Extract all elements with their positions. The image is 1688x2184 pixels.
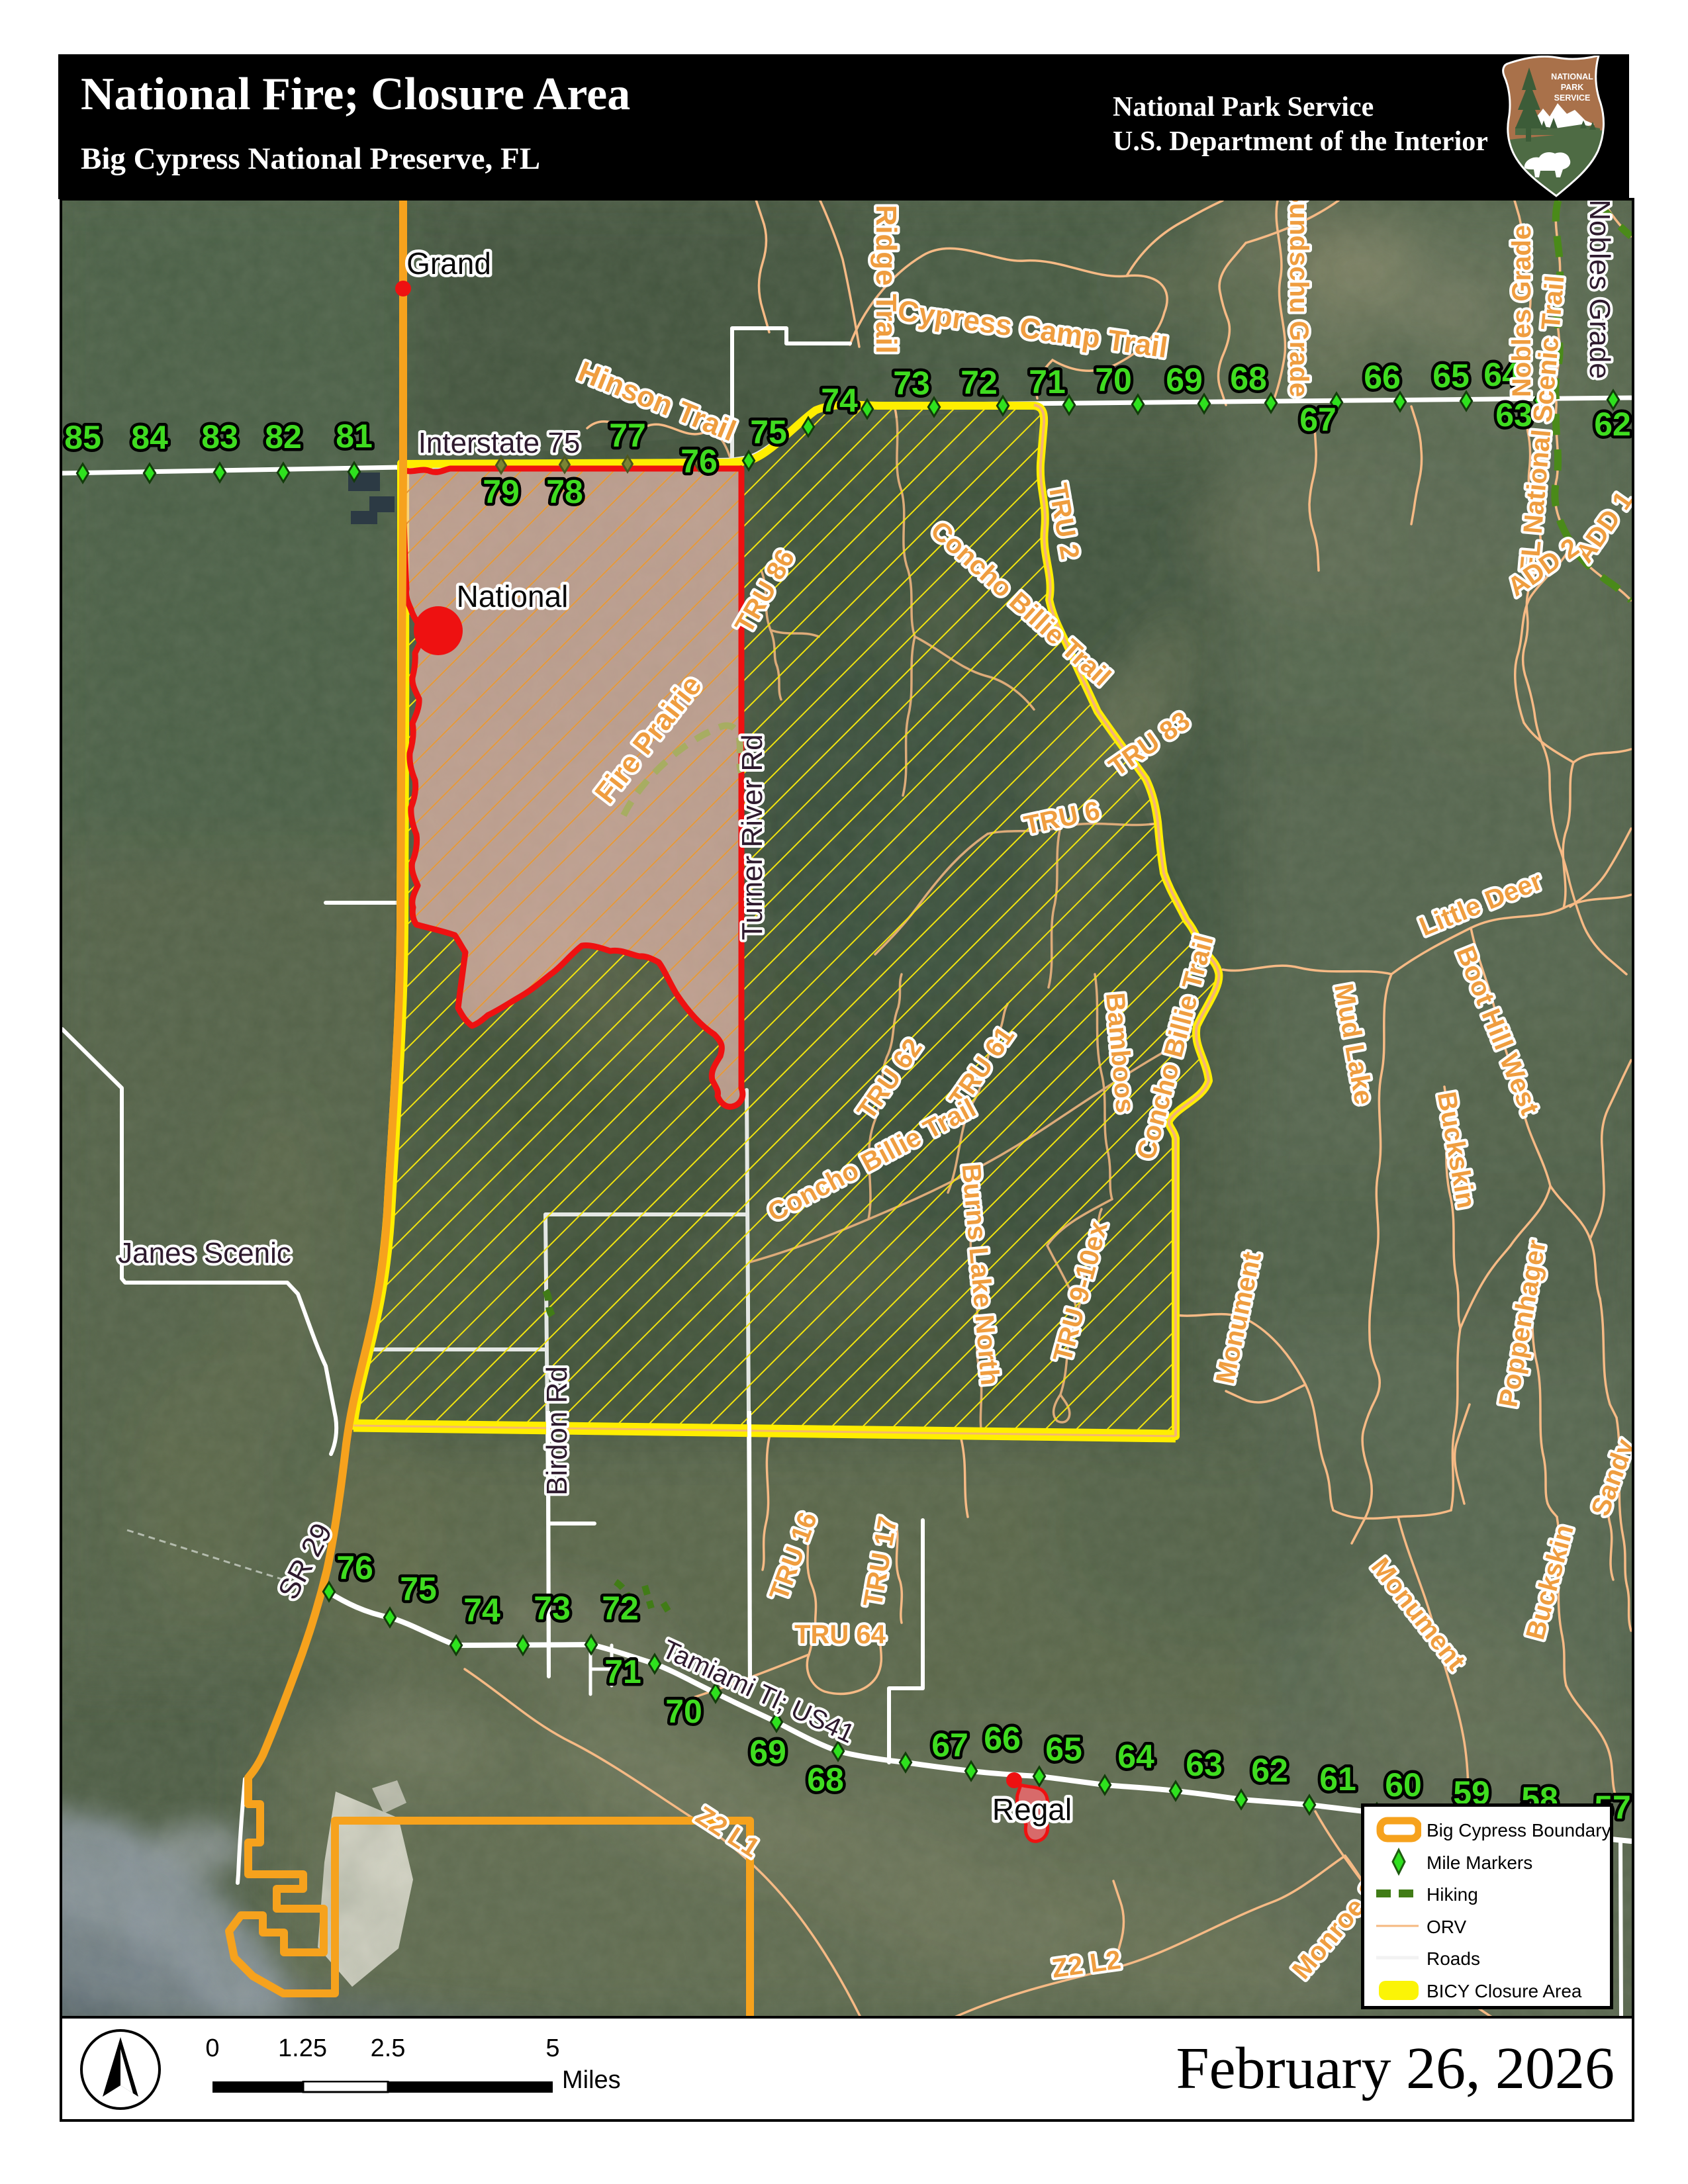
svg-text:Bundschu Grade: Bundschu Grade	[1284, 201, 1313, 397]
svg-text:72: 72	[602, 1590, 639, 1627]
svg-text:75: 75	[750, 414, 787, 451]
svg-text:67: 67	[931, 1727, 968, 1764]
svg-text:62: 62	[1251, 1752, 1288, 1789]
svg-text:70: 70	[665, 1693, 702, 1730]
svg-text:Regal: Regal	[992, 1792, 1072, 1827]
svg-text:73: 73	[534, 1590, 571, 1627]
svg-text:66: 66	[1364, 359, 1401, 396]
svg-text:77: 77	[609, 417, 646, 454]
svg-text:70: 70	[1095, 361, 1132, 398]
svg-text:64: 64	[1117, 1738, 1154, 1775]
svg-text:76: 76	[336, 1549, 373, 1586]
svg-text:69: 69	[1166, 361, 1203, 398]
svg-text:85: 85	[64, 419, 101, 456]
svg-text:82: 82	[265, 418, 302, 455]
svg-text:65: 65	[1432, 357, 1470, 394]
svg-text:Turner River Rd: Turner River Rd	[736, 734, 769, 940]
svg-text:68: 68	[1230, 360, 1267, 397]
svg-text:75: 75	[400, 1570, 437, 1608]
svg-text:83: 83	[201, 418, 238, 455]
svg-text:71: 71	[604, 1653, 641, 1690]
svg-text:66: 66	[984, 1720, 1021, 1757]
svg-text:63: 63	[1495, 396, 1532, 433]
svg-text:PARK: PARK	[1561, 83, 1584, 92]
svg-text:60: 60	[1385, 1766, 1422, 1803]
svg-text:74: 74	[463, 1592, 500, 1629]
svg-text:National: National	[457, 579, 569, 614]
svg-text:Ridge Trail: Ridge Trail	[870, 205, 902, 354]
svg-text:76: 76	[680, 443, 718, 480]
svg-text:67: 67	[1299, 401, 1336, 438]
svg-text:61: 61	[1319, 1760, 1356, 1797]
svg-text:79: 79	[483, 473, 520, 510]
svg-text:Interstate 75: Interstate 75	[418, 427, 581, 459]
svg-text:Grand: Grand	[406, 246, 491, 281]
svg-text:63: 63	[1186, 1746, 1223, 1783]
svg-text:NATIONAL: NATIONAL	[1551, 72, 1593, 81]
svg-text:TRU 64: TRU 64	[794, 1620, 886, 1649]
svg-text:65: 65	[1045, 1731, 1082, 1768]
svg-text:74: 74	[821, 382, 858, 419]
svg-text:SERVICE: SERVICE	[1554, 93, 1591, 103]
svg-text:68: 68	[807, 1761, 844, 1798]
svg-text:69: 69	[749, 1733, 786, 1770]
svg-text:72: 72	[961, 364, 998, 401]
svg-text:78: 78	[546, 473, 583, 510]
svg-text:Nobles Grade: Nobles Grade	[1583, 201, 1616, 379]
svg-text:71: 71	[1029, 363, 1066, 400]
svg-text:81: 81	[336, 418, 373, 455]
svg-text:73: 73	[893, 365, 930, 402]
svg-text:62: 62	[1594, 406, 1631, 443]
svg-text:84: 84	[131, 419, 168, 456]
svg-text:Birdon Rd: Birdon Rd	[541, 1366, 573, 1496]
svg-text:Janes Scenic: Janes Scenic	[118, 1237, 291, 1269]
